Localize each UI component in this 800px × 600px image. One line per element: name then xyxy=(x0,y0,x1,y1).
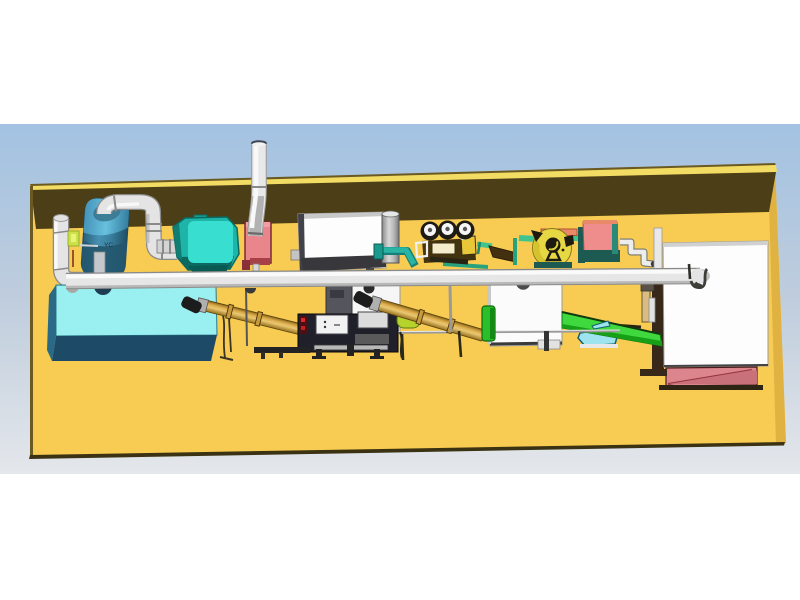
svg-text:YC: YC xyxy=(104,242,113,249)
